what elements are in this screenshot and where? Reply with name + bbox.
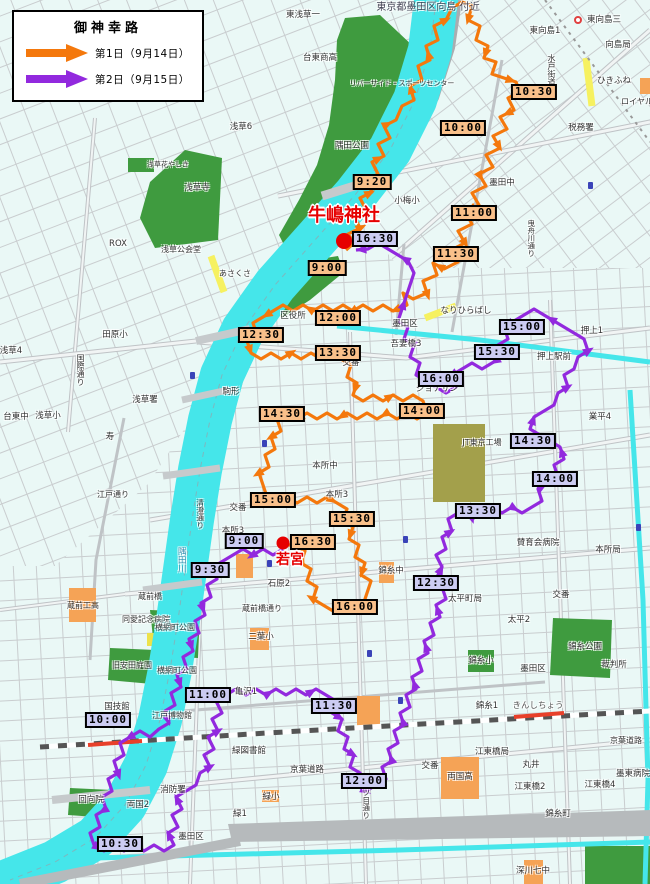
building-orange [379, 562, 394, 583]
time-label-day1: 12:30 [238, 327, 284, 343]
time-label-day1: 9:00 [308, 260, 347, 276]
building-orange [640, 78, 650, 94]
time-label-day2: 10:30 [97, 836, 143, 852]
time-label-day2: 11:00 [185, 687, 231, 703]
poi-icon [398, 697, 403, 704]
legend-item-label: 第1日（9月14日） [95, 46, 190, 61]
station-dot [575, 17, 581, 23]
time-label-day1: 12:00 [315, 310, 361, 326]
time-label-day1: 11:30 [433, 246, 479, 262]
time-label-day2: 9:00 [225, 533, 264, 549]
time-label-day2: 9:30 [191, 562, 230, 578]
time-label-day1: 15:00 [250, 492, 296, 508]
time-label-day1: 10:30 [511, 84, 557, 100]
time-label-day2: 16:30 [352, 231, 398, 247]
wakamiya-marker [277, 537, 290, 550]
procession-route-map: 東浅草一台東商高浅草6リバーサイド・スポーツセンター隅田公園東向島三東向島1向島… [0, 0, 650, 884]
time-label-day2: 13:30 [455, 503, 501, 519]
building-orange [262, 790, 279, 802]
ushijima-label: 牛嶋神社 [308, 207, 380, 225]
legend-item-day1: 第1日（9月14日） [26, 44, 202, 62]
time-label-day1: 16:30 [290, 534, 336, 550]
legend-item-day2: 第2日（9月15日） [26, 70, 202, 88]
time-label-day2: 14:30 [510, 433, 556, 449]
time-label-day1: 15:30 [329, 511, 375, 527]
park [468, 650, 494, 672]
day2-route-arrow-icon [26, 70, 88, 88]
time-label-day2: 11:30 [311, 698, 357, 714]
wakamiya-label: 若宮 [276, 553, 304, 567]
time-label-day2: 10:00 [85, 712, 131, 728]
poi-icon [403, 536, 408, 543]
time-label-day1: 14:00 [399, 403, 445, 419]
park [550, 618, 612, 678]
building-orange [524, 860, 543, 884]
park [128, 158, 154, 172]
legend: 御神幸路 第1日（9月14日） 第2日（9月15日） [12, 10, 204, 102]
day1-route-arrow-icon [26, 44, 88, 62]
legend-title: 御神幸路 [14, 17, 202, 36]
building-orange [69, 588, 96, 622]
poi-icon [636, 524, 641, 531]
poi-icon [190, 372, 195, 379]
poi-icon [267, 560, 272, 567]
time-label-day2: 14:00 [532, 471, 578, 487]
time-label-day1: 11:00 [451, 205, 497, 221]
building-orange [250, 628, 269, 650]
poi-icon [262, 440, 267, 447]
legend-item-label: 第2日（9月15日） [95, 72, 190, 87]
building-orange [357, 696, 380, 727]
time-label-day1: 13:30 [315, 345, 361, 361]
time-label-day1: 10:00 [440, 120, 486, 136]
jt-factory-block [433, 424, 485, 502]
time-label-day1: 16:00 [332, 599, 378, 615]
park [585, 846, 650, 884]
time-label-day2: 15:30 [474, 344, 520, 360]
ushijima-marker [336, 233, 352, 249]
time-label-day2: 12:00 [341, 773, 387, 789]
time-label-day2: 16:00 [418, 371, 464, 387]
building-orange [441, 757, 479, 799]
time-label-day1: 14:30 [259, 406, 305, 422]
poi-icon [367, 650, 372, 657]
poi-icon [588, 182, 593, 189]
map-area-title: 東京都墨田区向島 付近 [376, 0, 479, 13]
time-label-day1: 9:20 [353, 174, 392, 190]
time-label-day2: 12:30 [413, 575, 459, 591]
time-label-day2: 15:00 [499, 319, 545, 335]
